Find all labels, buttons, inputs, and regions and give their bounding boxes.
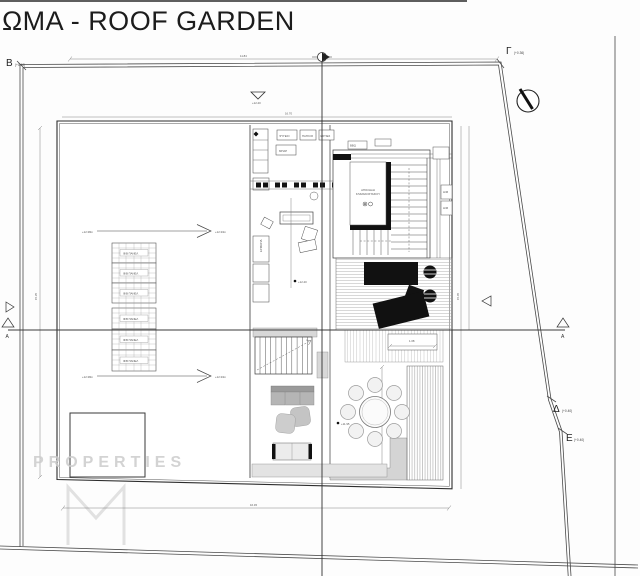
slope-to-label: +12.33m bbox=[215, 375, 227, 379]
kitchen-box-label: ΨΥΓΕΙΟ bbox=[279, 134, 290, 138]
sunbed bbox=[364, 262, 418, 285]
marker-epsilon-elevation: (+0.40) bbox=[574, 438, 584, 442]
sofa-back bbox=[271, 386, 314, 392]
marker-b: Β bbox=[6, 58, 13, 69]
marker-gamma: Γ bbox=[506, 46, 512, 57]
pv-panel-label: Φ/Β ΠΑΝΕΛ bbox=[123, 292, 138, 296]
level-nabla-value: +12.40 bbox=[252, 101, 261, 105]
equipment-label: BBQ bbox=[350, 144, 357, 148]
dimension-top: 11.84 bbox=[68, 54, 499, 62]
equipment-label: Η/Μ bbox=[443, 206, 449, 210]
marker-epsilon: Ε bbox=[566, 433, 573, 444]
level-nabla-icon: +12.40 bbox=[251, 92, 265, 105]
pergola-area: 1.08 bbox=[345, 330, 443, 362]
marker-delta: Δ bbox=[553, 404, 560, 415]
dimension-top-value: 11.84 bbox=[240, 54, 247, 58]
kitchen-box-label: ΠΑΓΚΟΣ bbox=[302, 134, 313, 138]
sofa-cushion bbox=[286, 392, 300, 405]
slope-to-label: +12.33m bbox=[215, 230, 227, 234]
kitchen-cabinet-label: ΕΡΜΑΡΙΑ bbox=[259, 239, 263, 252]
stair-core-label-2: ΚΛΙΜΑΚΟΣΤΑΣΙΟΥ bbox=[356, 192, 380, 196]
pv-panel-label: Φ/Β ΠΑΝΕΛ bbox=[123, 252, 138, 256]
dining-set bbox=[341, 378, 410, 447]
pouf bbox=[275, 413, 296, 434]
spot-level-value: +12.40 bbox=[298, 280, 307, 284]
dimension-right-value: 15.45 bbox=[456, 293, 460, 300]
sofa-cushion bbox=[300, 392, 314, 405]
spot-level-value: +11.95 bbox=[341, 422, 350, 426]
pv-panel-label: Φ/Β ΠΑΝΕΛ bbox=[123, 359, 138, 363]
dimension-left-value: 15.35 bbox=[34, 293, 38, 300]
terrace-edge-band bbox=[252, 464, 387, 477]
marker-b-elevation: (+0.40) bbox=[15, 63, 25, 67]
slope-from-label: +12.38m bbox=[82, 230, 94, 234]
bench bbox=[272, 443, 312, 460]
marker-delta-elevation: (+0.40) bbox=[562, 409, 572, 413]
pv-panel-label: Φ/Β ΠΑΝΕΛ bbox=[123, 272, 138, 276]
sunbed-terrace bbox=[336, 258, 452, 330]
section-marker-a-left: Α bbox=[6, 334, 10, 340]
marker-gamma-elevation: (+0.36) bbox=[514, 51, 524, 55]
dimension-building-top-value: 16.70 bbox=[285, 112, 292, 116]
equipment-label: Η/Μ bbox=[443, 190, 449, 194]
pv-panel-label: Φ/Β ΠΑΝΕΛ bbox=[123, 317, 138, 321]
section-marker-a-right: Α bbox=[561, 334, 565, 340]
sofa-cushion bbox=[271, 392, 285, 405]
slope-from-label: +12.38m bbox=[82, 375, 94, 379]
counter-table bbox=[280, 212, 313, 224]
drawing-title: ΩΜΑ - ROOF GARDEN bbox=[2, 6, 295, 36]
kitchen-box-label: ΜΠΑΡ bbox=[279, 149, 287, 153]
north-arrow-icon bbox=[517, 89, 539, 112]
round-stool bbox=[310, 192, 318, 200]
dimension-bottom-value: 16.45 bbox=[250, 503, 257, 507]
side-table bbox=[424, 290, 437, 303]
watermark-text: PROPERTIES bbox=[33, 454, 186, 471]
side-table bbox=[424, 266, 437, 279]
pv-panel-label: Φ/Β ΠΑΝΕΛ bbox=[123, 338, 138, 342]
dimension-deck-value: 1.08 bbox=[409, 339, 415, 343]
roof-garden-plan-drawing: ΩΜΑ - ROOF GARDEN Β (+0.40) Γ (+0.36) Δ … bbox=[0, 0, 640, 576]
floorplan-page: ΩΜΑ - ROOF GARDEN Β (+0.40) Γ (+0.36) Δ … bbox=[0, 0, 640, 576]
